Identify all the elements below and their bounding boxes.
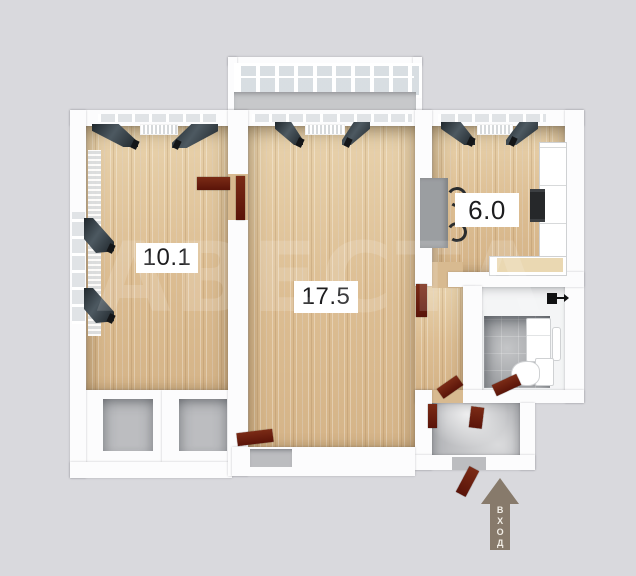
dining-table-icon: [420, 178, 448, 248]
outer-wall-bottom-left: [70, 462, 232, 478]
radiator-icon: [140, 124, 178, 135]
door-hall-left-icon: [428, 404, 437, 428]
wall-room-divider: [228, 110, 248, 476]
entrance-arrow: ВХОД: [481, 478, 519, 550]
room-living-area-label: 17.5: [294, 281, 358, 313]
door-entrance-icon: [456, 466, 479, 497]
door-room-small-icon: [197, 177, 230, 190]
wall-bathroom-left: [463, 286, 482, 403]
window-room-small-icon: [98, 114, 216, 122]
door-hall-closet-icon: [469, 406, 484, 428]
door-jamb-icon: [236, 176, 245, 220]
washing-machine-icon: [526, 318, 551, 362]
entrance-arrow-stem: ВХОД: [490, 503, 510, 550]
vent-arrowhead-icon: [564, 294, 569, 302]
kitchen-counter-top-icon: [497, 258, 563, 272]
towel-rail-icon: [552, 327, 561, 361]
room-small-area-label: 10.1: [136, 243, 198, 273]
outer-wall-right: [565, 110, 584, 403]
vent-icon: [547, 293, 557, 304]
balcony-window-rail: [236, 76, 414, 78]
radiator-icon: [477, 124, 513, 135]
living-doorway: [250, 449, 292, 467]
radiator-icon: [305, 124, 345, 135]
stove-icon: [530, 189, 545, 222]
closet-left-floor: [103, 399, 153, 451]
room-kitchen-area-label: 6.0: [455, 193, 519, 227]
window-room-small-side-icon: [72, 212, 85, 324]
closet-right-floor: [179, 399, 227, 451]
door-kitchen-icon: [416, 284, 427, 317]
window-living-balcony-icon: [252, 114, 412, 122]
floor-plan: АВЕСТА 10.1 17.5 6.0 ВХОД: [0, 0, 636, 576]
entrance-label: ВХОД: [495, 505, 505, 549]
window-kitchen-icon: [438, 114, 546, 122]
entrance-arrow-head-icon: [481, 478, 519, 504]
